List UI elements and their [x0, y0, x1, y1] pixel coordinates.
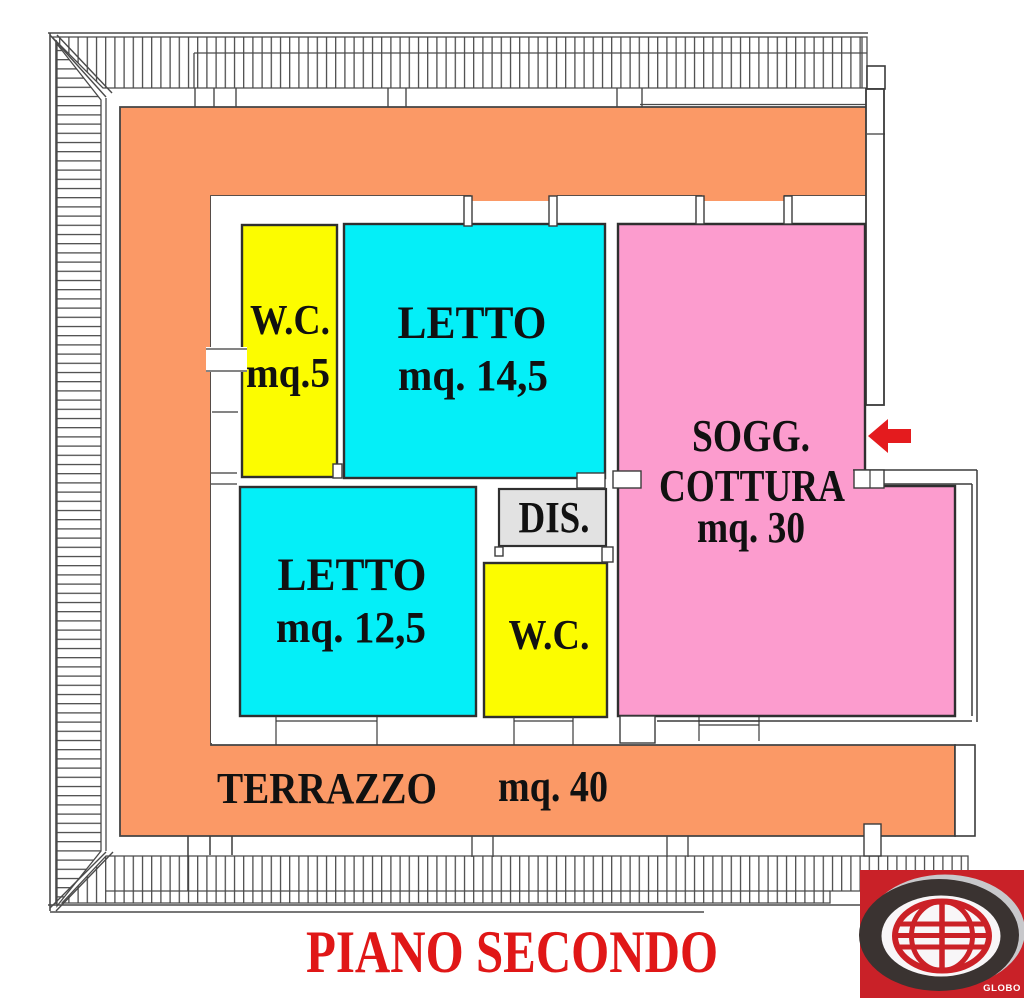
- svg-text:SOGG.: SOGG.: [692, 412, 810, 462]
- svg-text:mq. 40: mq. 40: [498, 761, 608, 810]
- svg-text:GLOBO: GLOBO: [983, 983, 1021, 994]
- svg-text:PIANO SECONDO: PIANO SECONDO: [306, 918, 718, 985]
- svg-text:TERRAZZO: TERRAZZO: [217, 765, 437, 814]
- svg-text:mq.5: mq.5: [246, 350, 330, 396]
- svg-text:mq. 30: mq. 30: [697, 503, 805, 551]
- svg-text:LETTO: LETTO: [398, 297, 547, 349]
- svg-text:LETTO: LETTO: [278, 549, 427, 601]
- svg-text:mq. 12,5: mq. 12,5: [276, 604, 426, 653]
- svg-text:W.C.: W.C.: [250, 297, 330, 343]
- svg-text:W.C.: W.C.: [509, 611, 590, 658]
- svg-text:mq. 14,5: mq. 14,5: [398, 352, 548, 401]
- svg-text:DIS.: DIS.: [519, 493, 590, 542]
